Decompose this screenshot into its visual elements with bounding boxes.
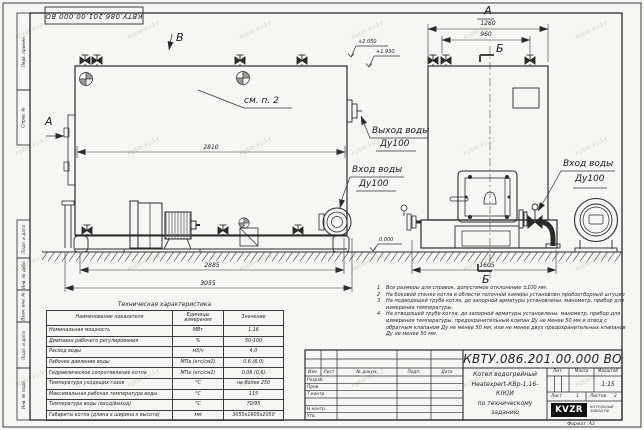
valve-icon [297, 55, 307, 66]
name-line: по техническому заданию [464, 399, 546, 418]
section-label-top: Б [496, 42, 504, 55]
valve-icon [525, 55, 535, 66]
front-view-label: А [473, 4, 503, 17]
note-number: 2 [377, 292, 386, 299]
note-number: 3 [377, 298, 386, 311]
tech-header: Единицы измерения [173, 311, 224, 326]
corner-stamp-text: КВТУ.086.201.00.000 ВО [45, 12, 143, 20]
inlet-front-label: Вход воды [563, 159, 613, 169]
valve-icon [293, 225, 303, 236]
furnace-door [450, 171, 517, 222]
elevation-top: +2.050 [358, 39, 377, 45]
ground-line [42, 252, 622, 261]
valve-icon [92, 55, 102, 66]
sidebar-cell: Инв. № дубл. [17, 258, 30, 290]
view-b-label: В [176, 31, 184, 44]
format-note: Формат А3 [540, 422, 622, 427]
inlet-front-dn-label: Ду100 [575, 174, 605, 184]
tech-cell: Температура уходящих газов [47, 378, 173, 389]
staff-row-label: Пров. [307, 385, 320, 390]
crosshair-mark-icon [239, 218, 249, 228]
sidebar-cell: Справ. № [17, 90, 30, 145]
sidebar-label: Перв. примен. [21, 36, 26, 67]
tech-cell: 4,0 [224, 347, 284, 358]
valve-icon [82, 225, 92, 236]
tech-cell: Гидравлическое сопротивление котла [47, 368, 173, 379]
boiler-front-view [401, 46, 557, 278]
note-number: 1 [377, 285, 386, 292]
corner-stamp: КВТУ.086.201.00.000 ВО [45, 7, 143, 24]
tech-cell: % [173, 336, 224, 347]
sidebar-cell: Подп. и дата [17, 220, 30, 258]
sheets-label: Листов [590, 394, 606, 399]
sheets-value: 2 [614, 394, 617, 399]
see-note-label: см. п. 2 [244, 96, 279, 106]
valve-icon [441, 55, 451, 66]
sidebar-cell: Взам. инв. № [17, 290, 30, 322]
title-block-name: Котел водогрейный Heatexpert-КВр-1,16-К(… [464, 369, 546, 419]
tech-cell: Рабочее давление воды [47, 357, 173, 368]
staff-row-label: Н.контр. [307, 407, 326, 412]
pump-icon [319, 208, 351, 236]
note-item: 3На подводящей трубе котла, до запорной … [377, 298, 627, 311]
boiler-side-view [62, 66, 362, 252]
inlet-valve-assembly [519, 204, 560, 248]
staff-header-cell: Подп. [397, 370, 431, 375]
note-text: На боковой стенке котла в области топочн… [386, 292, 627, 299]
sheet-label: Лист [551, 394, 562, 399]
scale-label: Масштаб [594, 369, 622, 374]
notes-list: 1Все размеры для справок, допустимое отк… [377, 285, 627, 338]
fan-icon [575, 199, 618, 253]
tech-cell: МВт [173, 326, 224, 337]
scale-value: 1:15 [594, 381, 622, 388]
title-block-designation: КВТУ.086.201.00.000 ВО [463, 351, 622, 367]
dim-1605: 1605 [454, 262, 520, 269]
sidebar-label: Инв. № подл. [21, 380, 26, 409]
tech-table-title: Техническая характеристика [46, 301, 283, 308]
mass-label: Масса [569, 369, 594, 374]
elevation-zero: 0.000 [379, 237, 393, 243]
tech-table: Наименование показателя Единицы измерени… [46, 310, 284, 421]
logo-text: KVZR [555, 405, 583, 415]
tech-header: Наименование показателя [47, 311, 173, 326]
tech-cell: Максимальная рабочая температура воды [47, 389, 173, 400]
tech-cell: 0,06 (0,6) [224, 368, 284, 379]
note-item: 1Все размеры для справок, допустимое отк… [377, 285, 627, 292]
name-line: Heatexpert-КВр-1,16-К(К)И [464, 380, 546, 399]
tech-cell: Диапазон рабочего регулирования [47, 336, 173, 347]
kvzr-logo: KVZR [551, 403, 587, 417]
staff-header-cell: № докум. [337, 370, 397, 375]
dim-2885: 2885 [182, 262, 242, 269]
tech-cell: мм [173, 410, 224, 421]
note-number: 4 [377, 311, 386, 337]
valve-icon [235, 55, 245, 66]
view-a-marker: А [45, 115, 53, 128]
front-view-valves [428, 55, 535, 66]
sidebar-cell: Инв. № подл. [17, 368, 30, 420]
tech-cell: не более 250 [224, 378, 284, 389]
sidebar-label: Инв. № дубл. [21, 260, 26, 289]
logo-caption-line: ЗАВОД РФ [590, 409, 613, 413]
tech-cell: 70/95 [224, 400, 284, 411]
staff-row-label: Разраб. [307, 378, 324, 383]
sidebar-label: Справ. № [21, 107, 26, 127]
valve-icon [80, 55, 90, 66]
sidebar-cell: Перв. примен. [17, 13, 30, 90]
sheet-value: 1 [576, 394, 579, 399]
staff-header-cell: Лист [321, 370, 337, 375]
logo-caption: КОТЕЛЬНЫЙ ЗАВОД РФ [590, 405, 613, 414]
inlet-side-dn-label: Ду100 [359, 179, 389, 189]
sidebar-cell: Подп. и дата [17, 322, 30, 368]
tech-cell: МПа (кгс/см2) [173, 357, 224, 368]
inlet-side-label: Вход воды [352, 165, 402, 175]
note-item: 2На боковой стенке котла в области топоч… [377, 292, 627, 299]
tech-cell: м3/ч [173, 347, 224, 358]
tech-cell: °С [173, 378, 224, 389]
tech-cell: 1,16 [224, 326, 284, 337]
tech-cell: 50-100 [224, 336, 284, 347]
crosshair-mark-icon [80, 73, 93, 86]
tech-cell: Номинальная мощность [47, 326, 173, 337]
staff-header-cell: Изм. [305, 370, 321, 375]
note-text: На подводящей трубе котла, до запорной а… [386, 298, 627, 311]
valve-icon [428, 55, 438, 66]
tech-cell: Габариты котла (длина х ширина х высота) [47, 410, 173, 421]
dim-2810: 2810 [181, 144, 241, 151]
crosshair-mark-icon [237, 72, 250, 85]
tech-cell: °С [173, 400, 224, 411]
burner-assembly [130, 201, 200, 249]
tech-cell: 0,6 (6,0) [224, 357, 284, 368]
tech-cell: Расход воды [47, 347, 173, 358]
format-label: Формат [567, 422, 586, 427]
staff-row-label: Утв. [307, 414, 316, 419]
tech-cell: МПа (кгс/см2) [173, 368, 224, 379]
dim-960: 960 [458, 31, 514, 38]
note-item: 4На отводящей трубе котла, до запорной а… [377, 311, 627, 337]
drawing-sheet: kotel-kv.kzkotel-kv.kzkotel-kv.kzkotel-k… [0, 0, 644, 430]
note-text: Все размеры для справок, допустимое откл… [386, 285, 627, 292]
tech-cell: 115 [224, 389, 284, 400]
sidebar-label: Подп. и дата [21, 331, 26, 360]
name-line: Котел водогрейный [473, 370, 537, 379]
tech-header: Значение [224, 311, 284, 326]
dim-1260: 1260 [458, 20, 518, 27]
dim-3055: 3055 [178, 280, 238, 287]
format-value: А3 [589, 422, 595, 427]
side-view-dimensions [65, 146, 352, 292]
outlet-label: Выход воды [372, 126, 429, 136]
elevation-outlet: +1.930 [376, 49, 395, 55]
outlet-dn-label: Ду100 [380, 139, 410, 149]
sidebar-label: Подп. и дата [21, 225, 26, 254]
tech-cell: Температура воды (вход/выход) [47, 400, 173, 411]
tech-cell: °С [173, 389, 224, 400]
sidebar-label: Взам. инв. № [21, 292, 26, 320]
valve-icon [218, 225, 228, 236]
staff-header-cell: Дата [431, 370, 463, 375]
tech-characteristics: Техническая характеристика Наименование … [46, 301, 283, 421]
note-text: На отводящей трубе котла, до запорной ар… [386, 311, 627, 337]
lit-label: Лит. [547, 369, 569, 374]
staff-row-label: Т.контр. [307, 392, 326, 397]
tech-cell: 3055х1605х2050 [224, 410, 284, 421]
